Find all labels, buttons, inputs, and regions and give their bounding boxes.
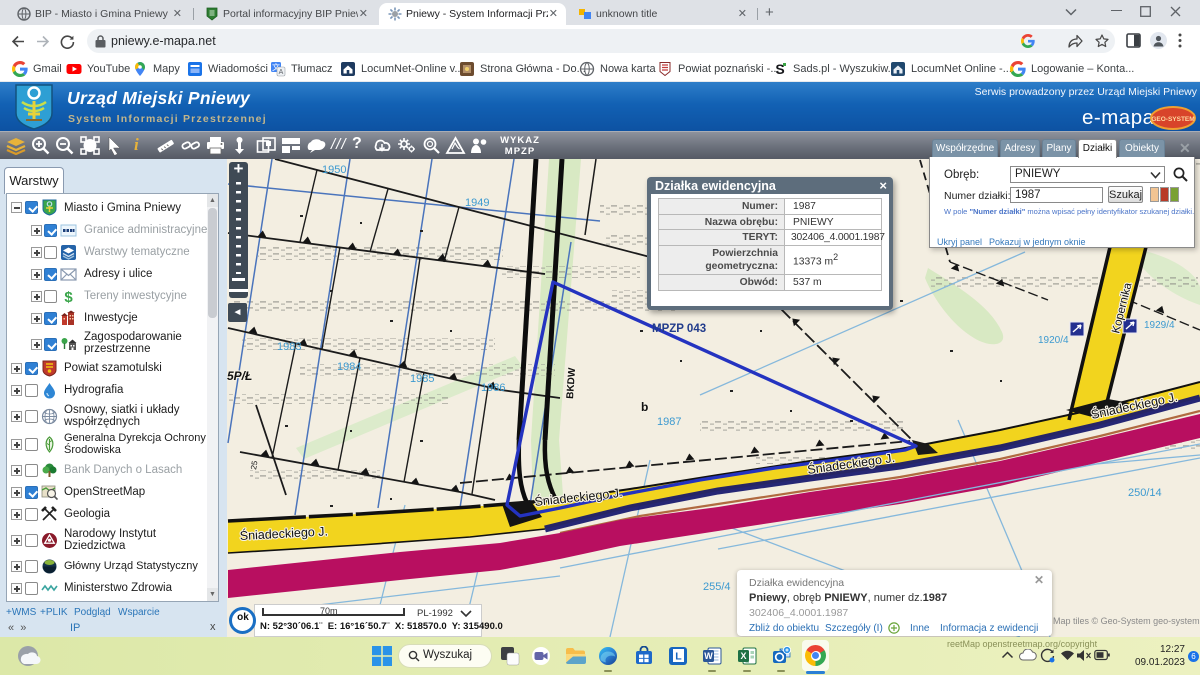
svg-text:250/14: 250/14 <box>1128 487 1162 499</box>
svg-text:L: L <box>675 651 682 663</box>
svg-text:W: W <box>704 651 713 661</box>
svg-text:5P/Ł: 5P/Ł <box>227 369 252 383</box>
svg-text:1949: 1949 <box>465 197 489 209</box>
svg-text:1983: 1983 <box>277 341 301 353</box>
svg-text:1984: 1984 <box>337 361 361 373</box>
svg-text:1950: 1950 <box>322 164 346 176</box>
svg-text:1987: 1987 <box>657 416 681 428</box>
svg-text:Map tiles © Geo-System geo-sys: Map tiles © Geo-System geo-system.com.pl <box>1053 616 1200 626</box>
svg-text:b: b <box>641 400 648 414</box>
svg-text:A: A <box>279 69 284 76</box>
svg-text:255/4: 255/4 <box>703 581 731 593</box>
svg-text:X: X <box>740 651 746 661</box>
svg-text:BKDW: BKDW <box>565 367 578 399</box>
svg-text:GEO-SYSTEM: GEO-SYSTEM <box>1151 116 1194 123</box>
svg-text:$: $ <box>64 289 73 305</box>
svg-text:1929/4: 1929/4 <box>1144 320 1175 331</box>
svg-text:1986: 1986 <box>481 382 505 394</box>
svg-text:1985: 1985 <box>410 373 434 385</box>
svg-text:1920/4: 1920/4 <box>1038 335 1069 346</box>
svg-text:MPZP 043: MPZP 043 <box>652 323 706 335</box>
